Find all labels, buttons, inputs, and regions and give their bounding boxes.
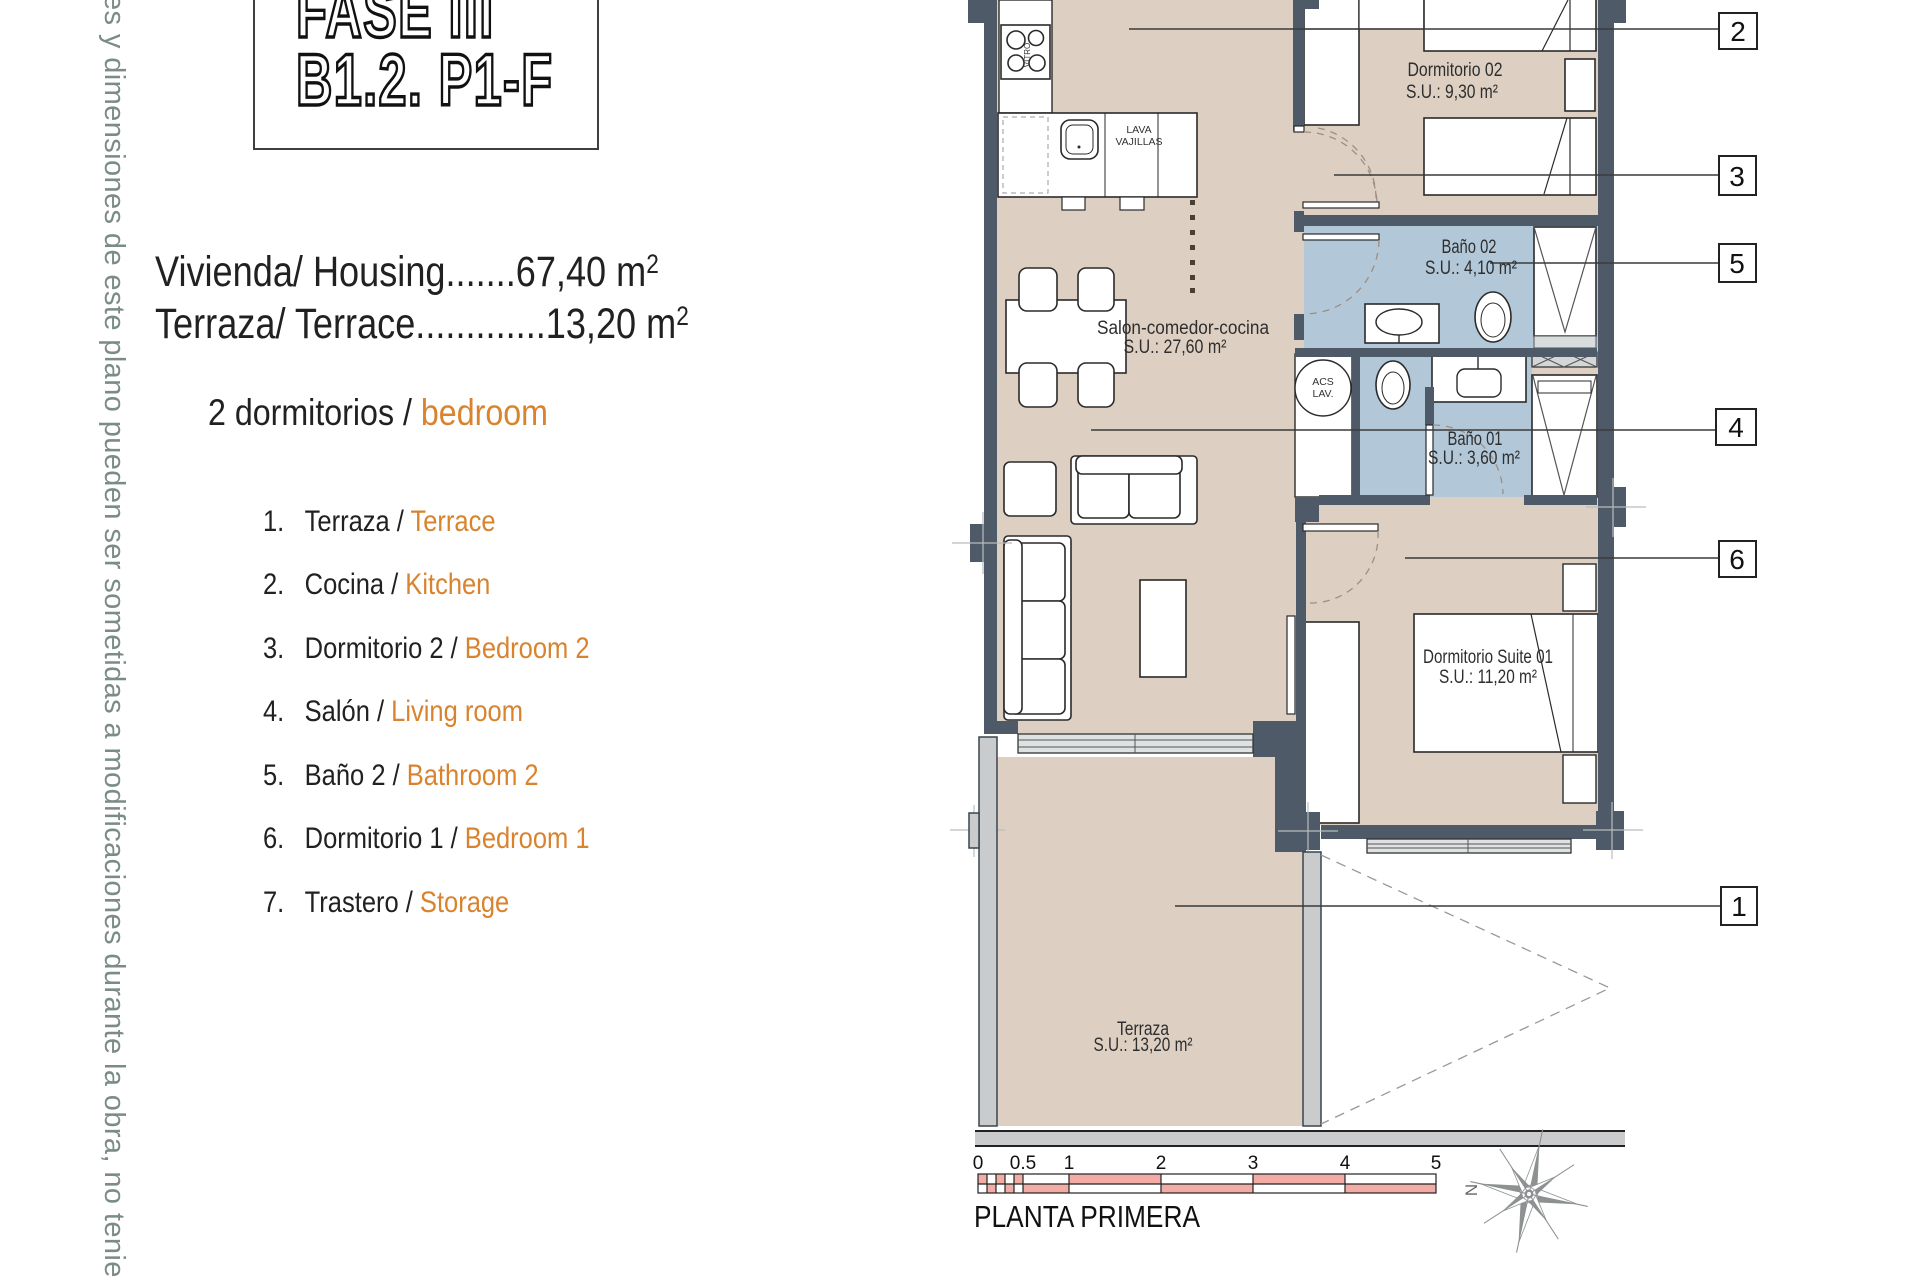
svg-text:6: 6 xyxy=(1729,544,1745,575)
svg-text:3: 3 xyxy=(1248,1153,1259,1174)
svg-text:S.U.: 13,20 m²: S.U.: 13,20 m² xyxy=(1094,1035,1193,1056)
svg-text:S.U.: 11,20 m²: S.U.: 11,20 m² xyxy=(1439,667,1537,688)
svg-text:1: 1 xyxy=(1064,1153,1075,1174)
svg-text:0: 0 xyxy=(973,1153,984,1174)
svg-text:LAV.: LAV. xyxy=(1312,388,1333,400)
svg-text:S.U.: 27,60 m²: S.U.: 27,60 m² xyxy=(1124,337,1227,358)
svg-text:Dormitorio 02: Dormitorio 02 xyxy=(1408,60,1503,81)
svg-text:Salon-comedor-cocina: Salon-comedor-cocina xyxy=(1097,318,1269,339)
svg-text:5: 5 xyxy=(1431,1153,1442,1174)
svg-text:PLANTA PRIMERA: PLANTA PRIMERA xyxy=(974,1199,1200,1234)
svg-text:VITRO: VITRO xyxy=(1023,43,1032,67)
svg-text:2: 2 xyxy=(1730,16,1746,47)
svg-text:1: 1 xyxy=(1731,891,1747,922)
svg-text:LAVA: LAVA xyxy=(1126,124,1151,136)
svg-text:3: 3 xyxy=(1729,161,1745,192)
svg-text:ACS: ACS xyxy=(1312,376,1334,388)
svg-text:4: 4 xyxy=(1340,1153,1351,1174)
svg-text:Baño 02: Baño 02 xyxy=(1442,237,1497,258)
svg-text:N: N xyxy=(1462,1184,1481,1196)
svg-text:Dormitorio Suite 01: Dormitorio Suite 01 xyxy=(1423,647,1553,668)
svg-text:0.5: 0.5 xyxy=(1010,1153,1036,1174)
svg-text:S.U.: 9,30 m²: S.U.: 9,30 m² xyxy=(1406,82,1498,103)
svg-text:5: 5 xyxy=(1729,248,1745,279)
svg-text:S.U.: 3,60 m²: S.U.: 3,60 m² xyxy=(1428,448,1520,469)
svg-text:2: 2 xyxy=(1156,1153,1167,1174)
svg-text:VAJILLAS: VAJILLAS xyxy=(1115,136,1162,148)
svg-text:Baño 01: Baño 01 xyxy=(1448,429,1503,450)
svg-text:4: 4 xyxy=(1728,412,1744,443)
svg-text:S.U.: 4,10 m²: S.U.: 4,10 m² xyxy=(1425,258,1517,279)
